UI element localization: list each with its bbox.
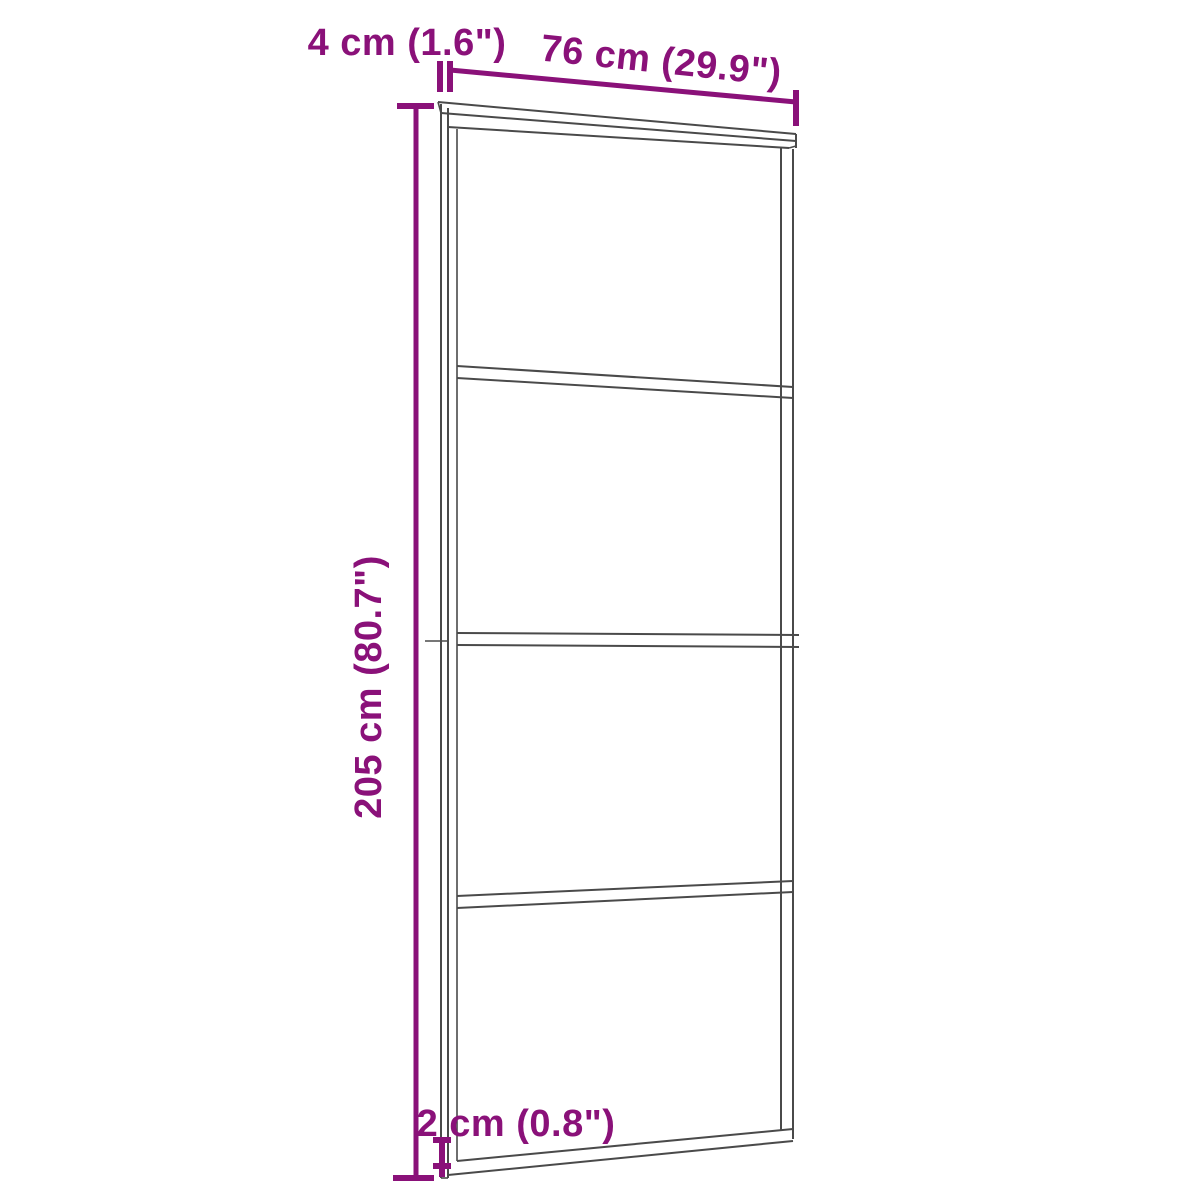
divider-top-edge — [457, 366, 793, 387]
height-dimension: 205 cm (80.7") — [348, 106, 434, 1178]
bottom-offset-dimension: 2 cm (0.8") — [417, 1103, 616, 1177]
height-dimension-label: 205 cm (80.7") — [348, 555, 390, 819]
width-dimension-label: 76 cm (29.9") — [539, 28, 784, 95]
sliding-door-drawing — [425, 102, 799, 1178]
top-offset-dimension: 4 cm (1.6") — [308, 22, 507, 92]
top-rail-bottom-edge — [448, 127, 789, 148]
top-rail — [438, 102, 796, 148]
divider-bottom-edge — [457, 645, 799, 647]
dimension-diagram: 205 cm (80.7") 4 cm (1.6") 76 cm (29.9")… — [0, 0, 1200, 1200]
bottom-offset-dimension-label: 2 cm (0.8") — [417, 1103, 616, 1145]
glass-divider-middle — [425, 633, 799, 647]
divider-bottom-edge — [457, 378, 793, 398]
divider-top-edge — [457, 633, 799, 635]
top-rail-end-cap-bottom — [789, 146, 796, 148]
right-stile — [781, 148, 793, 1139]
glass-divider-top — [457, 366, 793, 398]
diagram-canvas: 205 cm (80.7") 4 cm (1.6") 76 cm (29.9")… — [0, 0, 1200, 1200]
top-offset-dimension-label: 4 cm (1.6") — [308, 22, 507, 64]
glass-divider-bottom — [457, 881, 793, 908]
